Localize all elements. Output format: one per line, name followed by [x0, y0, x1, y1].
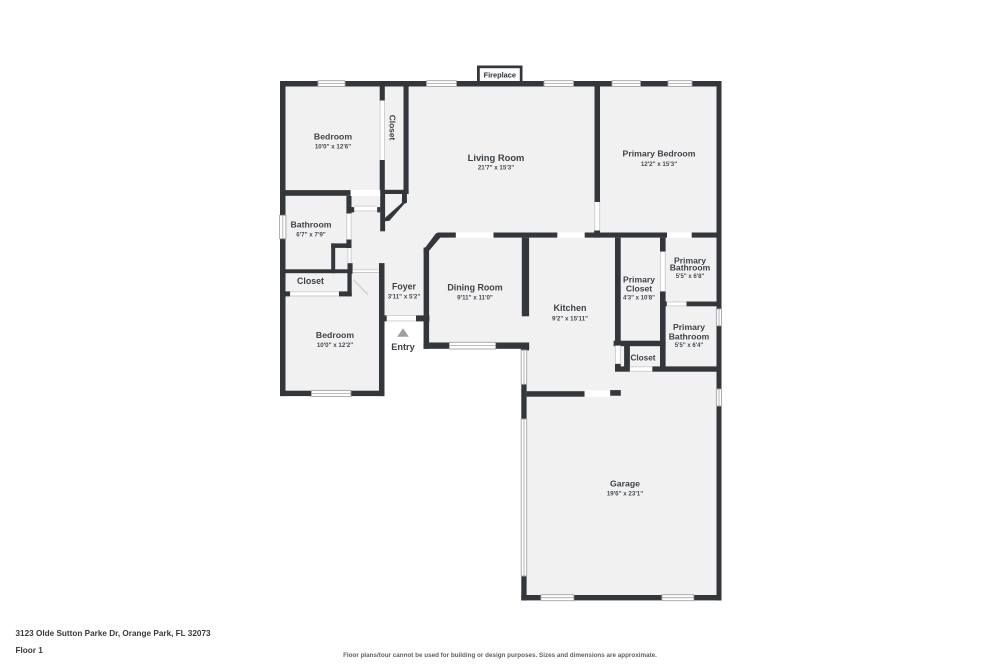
- svg-text:Floor plans/tour cannot be use: Floor plans/tour cannot be used for buil…: [343, 652, 657, 659]
- svg-text:Primary Bedroom: Primary Bedroom: [623, 149, 696, 159]
- svg-text:Closet: Closet: [626, 283, 652, 293]
- svg-text:Fireplace: Fireplace: [484, 71, 516, 80]
- svg-text:Bedroom: Bedroom: [316, 330, 354, 340]
- svg-text:19'6" x 23'1": 19'6" x 23'1": [607, 490, 643, 497]
- svg-text:12'2" x 15'3": 12'2" x 15'3": [641, 161, 677, 168]
- svg-text:Closet: Closet: [297, 276, 324, 286]
- svg-text:Closet: Closet: [387, 115, 397, 141]
- svg-text:Garage: Garage: [610, 479, 640, 489]
- svg-text:10'0" x 12'6": 10'0" x 12'6": [315, 144, 351, 151]
- svg-text:Bathroom: Bathroom: [290, 220, 331, 230]
- svg-text:3'11" x 5'2": 3'11" x 5'2": [388, 293, 421, 300]
- svg-text:Entry: Entry: [391, 342, 415, 352]
- svg-text:Closet: Closet: [630, 354, 655, 363]
- svg-text:3123 Olde Sutton Parke Dr, Ora: 3123 Olde Sutton Parke Dr, Orange Park, …: [16, 629, 212, 638]
- svg-text:Bathroom: Bathroom: [669, 332, 710, 342]
- svg-text:6'7" x 7'9": 6'7" x 7'9": [296, 232, 326, 239]
- svg-text:Foyer: Foyer: [392, 281, 417, 291]
- svg-text:4'3" x 10'8": 4'3" x 10'8": [623, 296, 655, 302]
- svg-text:Primary: Primary: [673, 322, 705, 332]
- svg-text:9'2" x 15'11": 9'2" x 15'11": [552, 315, 588, 322]
- svg-text:Bathroom: Bathroom: [670, 263, 711, 273]
- svg-text:Kitchen: Kitchen: [553, 303, 586, 313]
- svg-text:5'5" x 6'8": 5'5" x 6'8": [676, 274, 705, 280]
- svg-text:9'11" x 11'0": 9'11" x 11'0": [457, 295, 493, 302]
- svg-text:5'5" x 6'4": 5'5" x 6'4": [675, 343, 704, 349]
- svg-text:Living Room: Living Room: [468, 152, 525, 163]
- svg-text:Floor 1: Floor 1: [16, 646, 44, 655]
- svg-text:Bedroom: Bedroom: [314, 132, 352, 142]
- svg-text:21'7" x 15'3": 21'7" x 15'3": [478, 165, 514, 172]
- svg-text:Dining Room: Dining Room: [447, 283, 502, 293]
- svg-text:10'0" x 12'2": 10'0" x 12'2": [317, 342, 353, 349]
